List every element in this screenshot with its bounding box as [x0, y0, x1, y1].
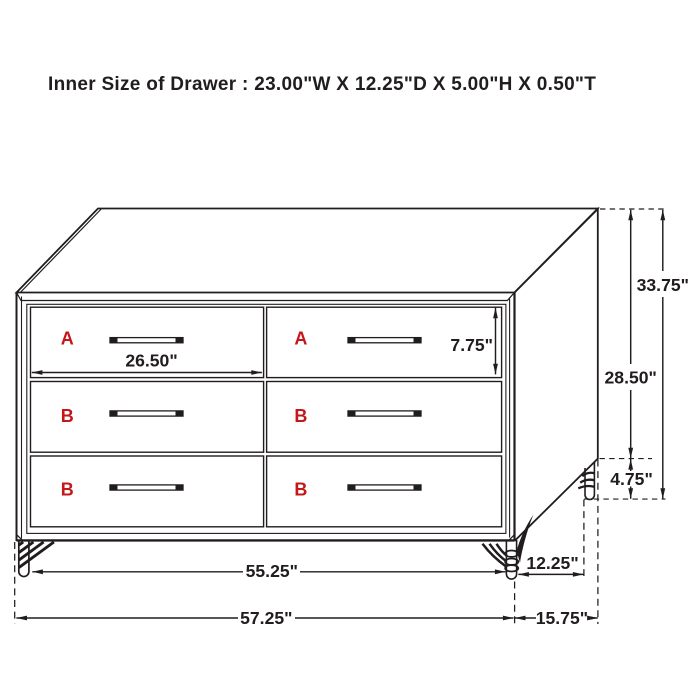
svg-text:15.75": 15.75": [536, 608, 588, 628]
svg-text:28.50": 28.50": [605, 368, 657, 388]
svg-text:12.25": 12.25": [526, 553, 578, 573]
svg-text:26.50": 26.50": [125, 351, 177, 371]
svg-text:B: B: [61, 479, 74, 499]
svg-text:A: A: [61, 328, 74, 348]
svg-text:33.75": 33.75": [637, 275, 689, 295]
svg-text:55.25": 55.25": [246, 561, 298, 581]
svg-text:Inner Size of Drawer : 23.00"W: Inner Size of Drawer : 23.00"W X 12.25"D…: [48, 74, 596, 95]
svg-text:B: B: [294, 406, 307, 426]
svg-text:B: B: [61, 406, 74, 426]
svg-text:7.75": 7.75": [450, 335, 493, 355]
svg-text:4.75": 4.75": [610, 469, 653, 489]
svg-text:A: A: [294, 328, 307, 348]
svg-text:B: B: [294, 479, 307, 499]
svg-text:57.25": 57.25": [240, 608, 292, 628]
